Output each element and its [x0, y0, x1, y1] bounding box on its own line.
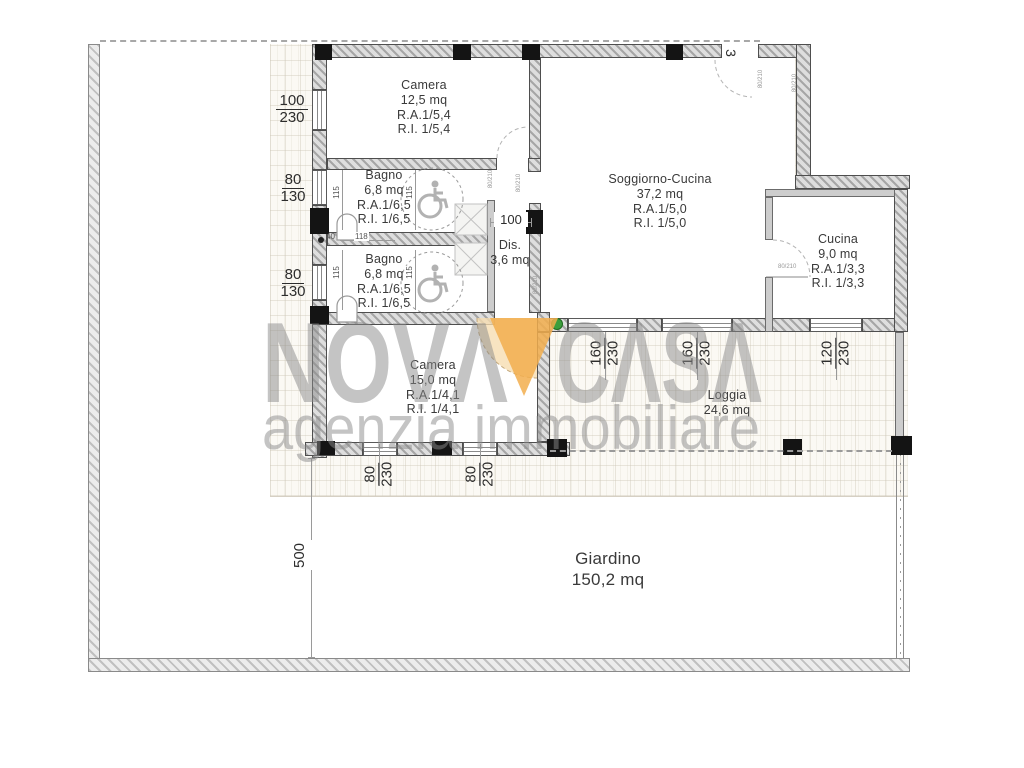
dim-fixture-115: 115: [332, 186, 341, 199]
dim-den: 230: [276, 110, 307, 126]
dim-window-80-230: 80230: [361, 456, 397, 492]
dim-fixture-115: 115: [405, 186, 414, 199]
room-ra: R.A.1/5,0: [585, 202, 735, 217]
dim-num: 80: [282, 172, 305, 189]
dim-tick: [531, 218, 532, 227]
dim-fixture-115: 115: [332, 266, 341, 279]
room-ra: R.A.1/5,4: [354, 108, 494, 123]
dim-window-120-230: 120230: [818, 334, 854, 372]
room-label-bagno1: Bagno 6,8 mq R.A.1/6,5 R.I. 1/6,5: [338, 168, 430, 227]
dim-garden-depth: 500: [288, 540, 312, 570]
door-size-label: 80/210: [778, 264, 796, 270]
room-ri: R.I. 1/6,5: [338, 212, 430, 227]
room-area: 6,8 mq: [338, 267, 430, 282]
floorplan-canvas: Camera 12,5 mq R.A.1/5,4 R.I. 1/5,4 Bagn…: [0, 0, 1024, 768]
room-ri: R.I. 1/5,0: [585, 216, 735, 231]
door-arc-entrance: [715, 60, 752, 97]
room-area: 12,5 mq: [354, 93, 494, 108]
room-name: Giardino: [528, 548, 688, 569]
room-label-camera1: Camera 12,5 mq R.A.1/5,4 R.I. 1/5,4: [354, 78, 494, 137]
dim-num: 80: [282, 267, 305, 284]
dim-window-160-230: 160230: [679, 334, 715, 372]
room-name: Loggia: [677, 388, 777, 403]
door-size-label: 80/210: [533, 276, 539, 294]
dim-den: 230: [698, 337, 714, 368]
room-name: Soggiorno-Cucina: [585, 172, 735, 187]
room-label-soggiorno: Soggiorno-Cucina 37,2 mq R.A.1/5,0 R.I. …: [585, 172, 735, 231]
room-ri: R.I. 1/6,5: [338, 296, 430, 311]
room-label-cucina: Cucina 9,0 mq R.A.1/3,3 R.I. 1/3,3: [783, 232, 893, 291]
room-area: 9,0 mq: [783, 247, 893, 262]
room-ri: R.I. 1/4,1: [363, 402, 503, 417]
room-area: 15,0 mq: [363, 373, 503, 388]
dim-num: 160: [589, 337, 606, 368]
door-arc-camera1: [497, 127, 528, 158]
room-ra: R.A.1/6,5: [338, 198, 430, 213]
room-area: 24,6 mq: [677, 403, 777, 418]
dim-window-80-130: 80 130: [276, 267, 310, 300]
dim-window-80-230: 80230: [462, 456, 498, 492]
door-size-label: 80/210: [758, 70, 764, 88]
room-area: 6,8 mq: [338, 183, 430, 198]
dim-tick: [308, 458, 315, 459]
dim-den: 230: [606, 337, 622, 368]
entrance-number: 3: [723, 49, 739, 57]
dim-fixture-115: 115: [405, 266, 414, 279]
dim-den: 130: [277, 284, 308, 300]
room-label-giardino: Giardino 150,2 mq: [528, 548, 688, 591]
dim-window-100-230: 100 230: [274, 93, 310, 126]
room-ri: R.I. 1/3,3: [783, 276, 893, 291]
door-size-label: 80/210: [488, 170, 494, 188]
room-label-dis: Dis. 3,6 mq: [480, 238, 540, 268]
dim-num: 100: [276, 93, 307, 110]
room-ra: R.A.1/4,1: [363, 388, 503, 403]
room-label-camera2: Camera 15,0 mq R.A.1/4,1 R.I. 1/4,1: [363, 358, 503, 417]
dim-num: 80: [363, 463, 380, 486]
room-area: 37,2 mq: [585, 187, 735, 202]
dim-tick: [308, 657, 315, 658]
room-label-bagno2: Bagno 6,8 mq R.A.1/6,5 R.I. 1/6,5: [338, 252, 430, 311]
dim-num: 80: [464, 463, 481, 486]
dim-num: 160: [681, 337, 698, 368]
dim-num: 120: [820, 337, 837, 368]
room-name: Dis.: [480, 238, 540, 253]
dim-dis-width: 100: [494, 212, 528, 227]
dim-den: 230: [837, 337, 853, 368]
room-name: Cucina: [783, 232, 893, 247]
room-ri: R.I. 1/5,4: [354, 122, 494, 137]
room-name: Camera: [363, 358, 503, 373]
room-ra: R.A.1/6,5: [338, 282, 430, 297]
dim-window-80-130: 80 130: [276, 172, 310, 205]
room-name: Bagno: [338, 168, 430, 183]
room-name: Bagno: [338, 252, 430, 267]
green-marker: [552, 319, 563, 330]
room-area: 3,6 mq: [480, 253, 540, 268]
dim-den: 230: [481, 458, 497, 489]
dim-den: 230: [380, 458, 396, 489]
dim-corridor-b: 118: [354, 232, 369, 241]
dim-window-160-230: 160230: [587, 334, 623, 372]
dim-corridor-a: 40: [326, 232, 335, 241]
door-size-label: 80/210: [516, 174, 522, 192]
fixtures-layer: [0, 0, 1024, 768]
door-size-label: 80/210: [792, 74, 798, 92]
dim-den: 130: [277, 189, 308, 205]
room-area: 150,2 mq: [528, 569, 688, 590]
room-label-loggia: Loggia 24,6 mq: [677, 388, 777, 418]
dim-tick: [490, 218, 491, 227]
room-name: Camera: [354, 78, 494, 93]
room-ra: R.A.1/3,3: [783, 262, 893, 277]
dim-dot: [318, 237, 324, 243]
